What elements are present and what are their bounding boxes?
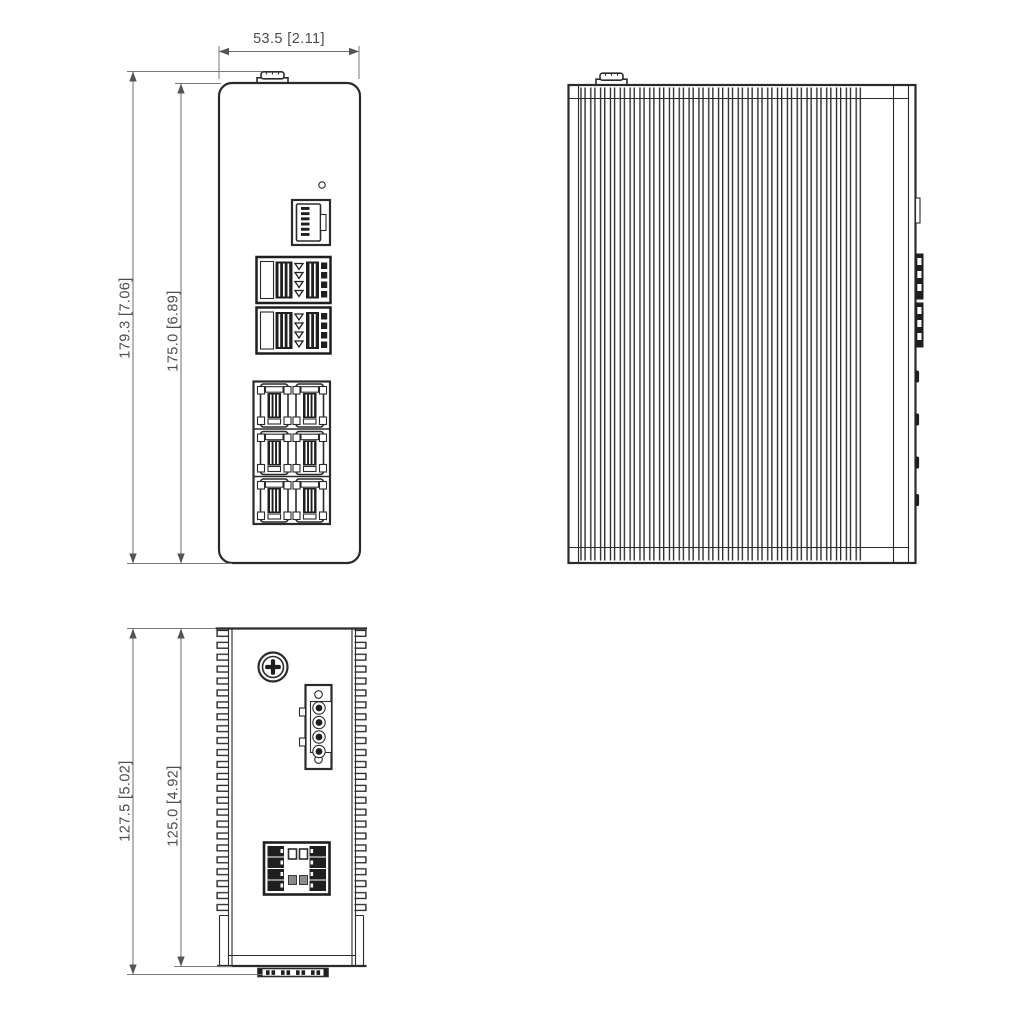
ground-stud-side bbox=[596, 73, 627, 85]
sfp-cage-edge bbox=[916, 254, 924, 300]
rj45-port-grid bbox=[254, 382, 331, 525]
dim-top-depth-body-label: 125.0 [4.92] bbox=[166, 765, 182, 846]
dim-top-depth-overall: 127.5 [5.02] bbox=[118, 629, 263, 975]
dimension-drawing-canvas: 53.5 [2.11] 179.3 [7.06] 175.0 [6.89] 12… bbox=[0, 0, 1024, 1024]
top-view bbox=[216, 629, 368, 977]
heatsink-fin-edge-left bbox=[216, 630, 229, 916]
rj45-port bbox=[293, 479, 327, 522]
terminal-tab bbox=[300, 738, 306, 746]
dim-front-height-body-label: 175.0 [6.89] bbox=[166, 290, 182, 371]
rj45-port bbox=[293, 432, 327, 475]
sfp-cage-edge bbox=[916, 303, 924, 348]
drawing-svg: 53.5 [2.11] 179.3 [7.06] 175.0 [6.89] 12… bbox=[0, 0, 1024, 1024]
console-port-latch bbox=[321, 215, 327, 231]
top-view-right-wall bbox=[352, 629, 356, 967]
top-view-left-wall bbox=[229, 629, 233, 967]
front-view bbox=[219, 72, 360, 563]
heatsink-fins bbox=[580, 88, 865, 561]
power-terminal-block-4pin bbox=[300, 685, 332, 769]
terminal-tab bbox=[300, 708, 306, 716]
rj45-port bbox=[258, 384, 292, 427]
dim-front-width-label: 53.5 [2.11] bbox=[253, 31, 325, 47]
dim-front-height-body: 175.0 [6.89] bbox=[166, 84, 222, 564]
rj45-port bbox=[293, 384, 327, 427]
rj45-port-edge bbox=[916, 414, 920, 426]
led-hole bbox=[319, 182, 325, 188]
side-view bbox=[569, 73, 924, 563]
rj45-port bbox=[258, 479, 292, 522]
sfp-port-block-upper bbox=[257, 257, 331, 303]
sfp-port-block-lower bbox=[257, 308, 331, 354]
phillips-cross bbox=[265, 665, 281, 669]
rj45-port-edge bbox=[916, 494, 920, 506]
dim-top-depth-overall-label: 127.5 [5.02] bbox=[118, 760, 134, 841]
rj45-port-edge bbox=[916, 457, 920, 469]
heatsink-fin-edge-right bbox=[355, 630, 368, 916]
ground-stud bbox=[257, 72, 288, 84]
terminal-mount-hole bbox=[315, 691, 323, 699]
grounding-screw bbox=[259, 653, 288, 682]
console-rj45-port bbox=[292, 200, 330, 245]
dim-front-height-overall-label: 179.3 [7.06] bbox=[118, 277, 134, 358]
din-rail-clip bbox=[258, 969, 328, 977]
console-port-edge bbox=[916, 198, 921, 223]
rj45-port bbox=[258, 432, 292, 475]
front-panel-protrusions bbox=[916, 198, 924, 506]
io-connector-block bbox=[264, 843, 330, 895]
rj45-port-edge bbox=[916, 371, 920, 383]
